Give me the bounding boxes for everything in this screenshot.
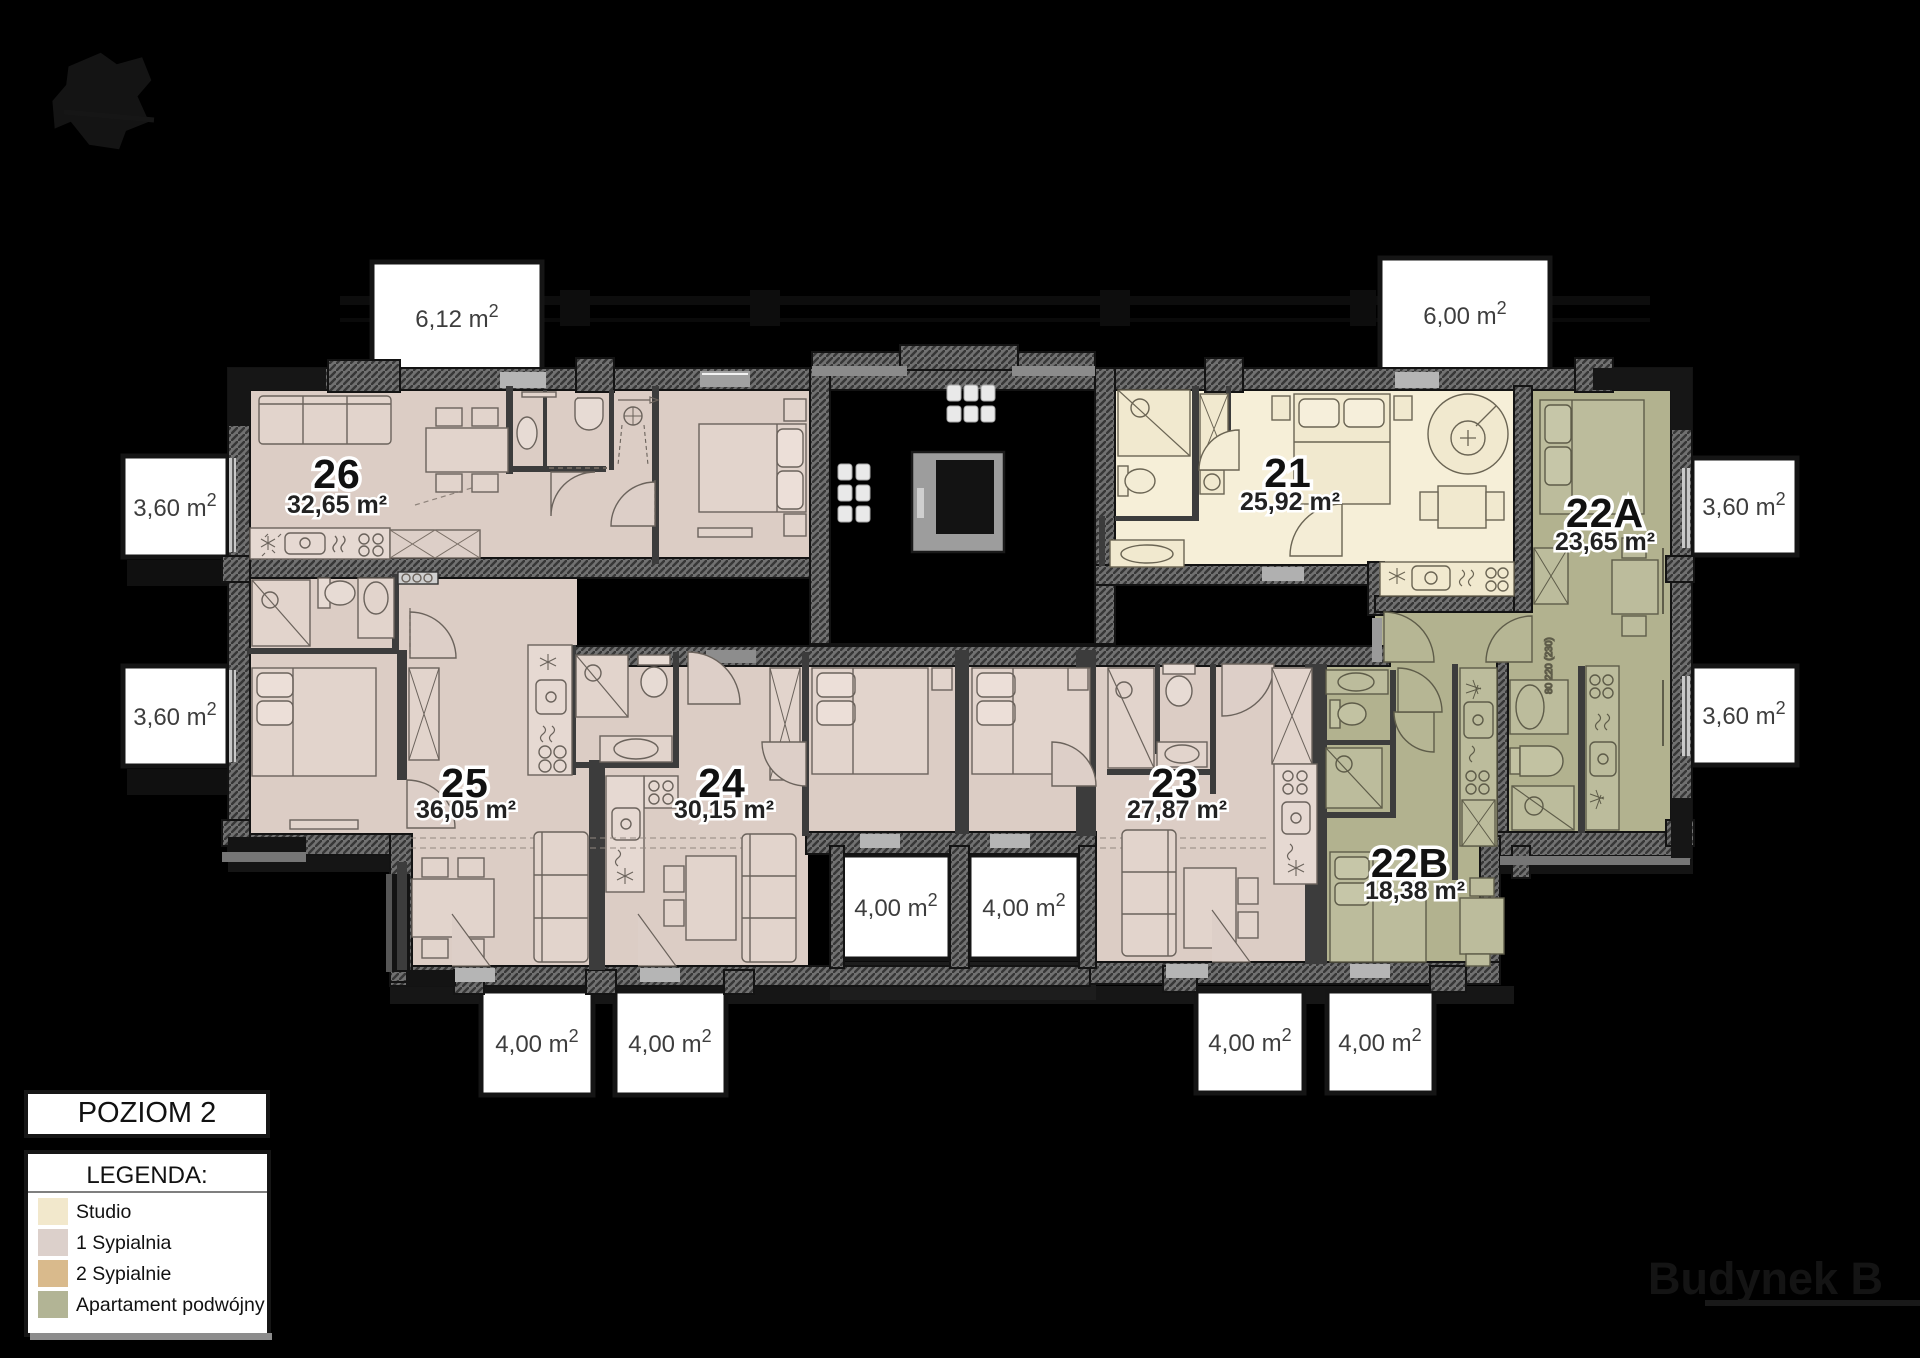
svg-text:2 Sypialnie: 2 Sypialnie [76, 1263, 171, 1285]
svg-text:25,92 m²: 25,92 m² [1240, 488, 1340, 516]
svg-text:3,60 m2: 3,60 m2 [133, 699, 216, 731]
svg-text:36,05 m²: 36,05 m² [416, 796, 516, 824]
svg-text:4,00 m2: 4,00 m2 [1208, 1025, 1291, 1057]
svg-text:18,38 m²: 18,38 m² [1365, 877, 1465, 905]
svg-text:3,60 m2: 3,60 m2 [1702, 698, 1785, 730]
svg-text:4,00 m2: 4,00 m2 [854, 890, 937, 922]
svg-text:4,00 m2: 4,00 m2 [982, 890, 1065, 922]
svg-text:27,87 m²: 27,87 m² [1127, 796, 1227, 824]
svg-text:Budynek B: Budynek B [1648, 1253, 1883, 1304]
svg-text:LEGENDA:: LEGENDA: [86, 1162, 207, 1189]
svg-text:POZIOM 2: POZIOM 2 [78, 1097, 217, 1129]
svg-text:80 220 (230): 80 220 (230) [1544, 637, 1555, 694]
svg-text:3,60 m2: 3,60 m2 [133, 490, 216, 522]
svg-text:Studio: Studio [76, 1201, 131, 1223]
svg-text:4,00 m2: 4,00 m2 [495, 1026, 578, 1058]
svg-text:6,00 m2: 6,00 m2 [1423, 298, 1506, 330]
svg-text:Apartament podwójny: Apartament podwójny [76, 1294, 265, 1316]
svg-text:6,12 m2: 6,12 m2 [415, 301, 498, 333]
svg-text:32,65 m²: 32,65 m² [287, 491, 387, 519]
svg-text:30,15 m²: 30,15 m² [674, 796, 774, 824]
svg-text:4,00 m2: 4,00 m2 [628, 1026, 711, 1058]
svg-text:4,00 m2: 4,00 m2 [1338, 1025, 1421, 1057]
svg-text:1 Sypialnia: 1 Sypialnia [76, 1232, 172, 1254]
svg-text:23,65 m²: 23,65 m² [1555, 528, 1655, 556]
svg-text:3,60 m2: 3,60 m2 [1702, 489, 1785, 521]
